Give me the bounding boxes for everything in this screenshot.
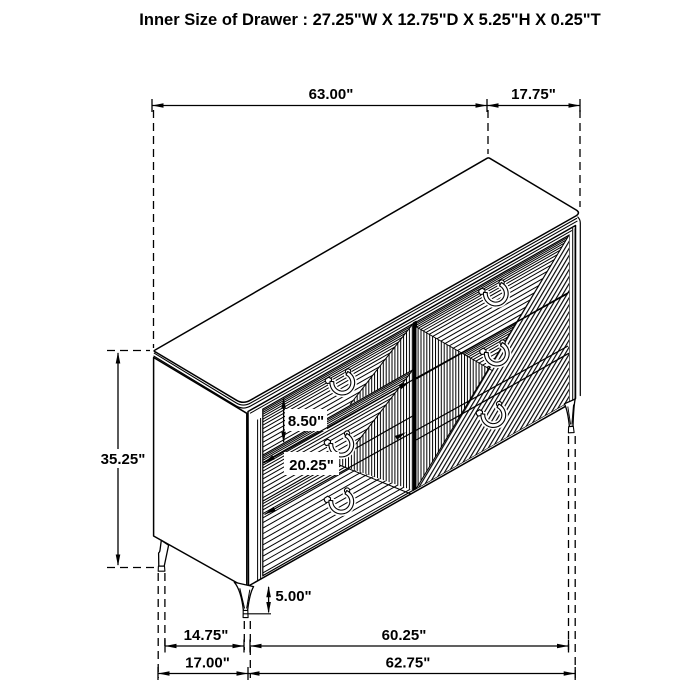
svg-text:Inner Size of Drawer : 27.25"W: Inner Size of Drawer : 27.25"W X 12.75"D…: [139, 11, 600, 29]
svg-text:35.25": 35.25": [101, 451, 146, 468]
svg-text:60.25": 60.25": [382, 627, 427, 644]
svg-text:17.75": 17.75": [511, 86, 556, 103]
svg-text:63.00": 63.00": [309, 86, 354, 103]
svg-text:14.75": 14.75": [184, 627, 229, 644]
svg-text:20.25": 20.25": [289, 457, 334, 474]
svg-text:17.00": 17.00": [185, 655, 230, 672]
svg-text:62.75": 62.75": [386, 655, 431, 672]
svg-text:8.50": 8.50": [288, 413, 324, 430]
svg-text:5.00": 5.00": [275, 588, 311, 605]
